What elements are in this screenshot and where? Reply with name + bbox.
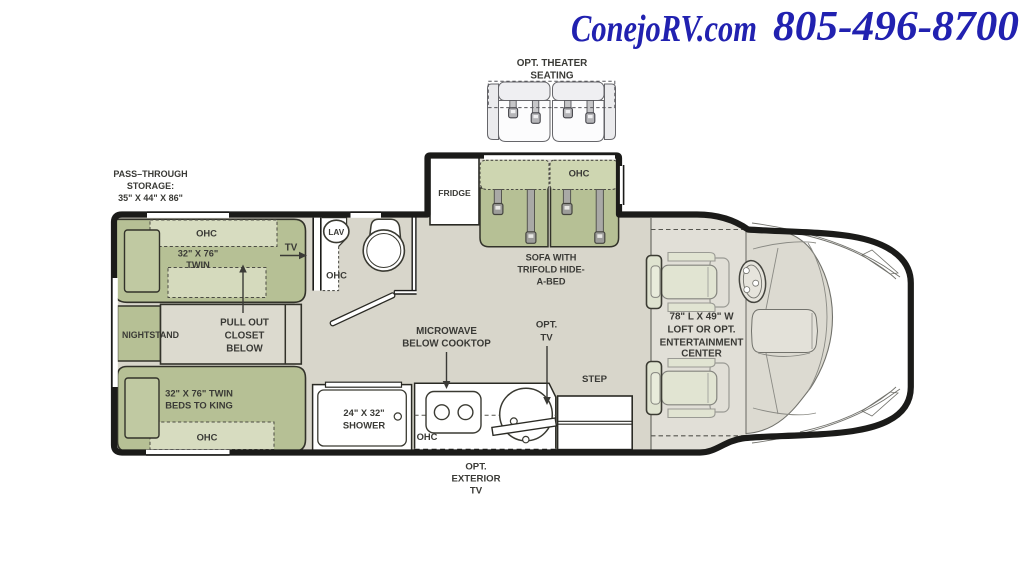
svg-text:TV: TV (540, 333, 553, 344)
svg-text:BELOW COOKTOP: BELOW COOKTOP (402, 339, 491, 350)
svg-text:CENTER: CENTER (681, 349, 722, 360)
svg-text:SOFA WITH: SOFA WITH (526, 253, 577, 263)
svg-text:STEP: STEP (582, 374, 608, 385)
svg-text:SEATING: SEATING (530, 71, 573, 82)
svg-text:35" X 44" X 86": 35" X 44" X 86" (118, 193, 183, 203)
svg-text:805-496-8700: 805-496-8700 (773, 4, 1019, 50)
svg-text:32" X 76": 32" X 76" (178, 249, 218, 259)
svg-text:78" L X 49" W: 78" L X 49" W (669, 312, 734, 323)
svg-text:ConejoRV.com: ConejoRV.com (571, 8, 757, 50)
svg-text:OHC: OHC (569, 168, 590, 179)
svg-text:TRIFOLD HIDE-: TRIFOLD HIDE- (517, 265, 584, 275)
svg-text:LAV: LAV (328, 228, 344, 237)
svg-text:32" X 76" TWIN: 32" X 76" TWIN (165, 388, 233, 399)
svg-text:A-BED: A-BED (536, 277, 565, 287)
svg-text:BELOW: BELOW (226, 344, 263, 355)
svg-text:TWIN: TWIN (186, 260, 210, 270)
svg-text:MICROWAVE: MICROWAVE (416, 326, 477, 337)
svg-text:TV: TV (470, 486, 483, 497)
svg-text:OHC: OHC (326, 270, 347, 281)
svg-text:OPT.: OPT. (465, 462, 486, 473)
svg-text:EXTERIOR: EXTERIOR (451, 474, 500, 485)
svg-text:24" X 32": 24" X 32" (343, 407, 384, 418)
svg-text:OHC: OHC (197, 432, 218, 443)
svg-text:ENTERTAINMENT: ENTERTAINMENT (660, 338, 744, 349)
svg-text:FRIDGE: FRIDGE (438, 188, 471, 198)
svg-text:NIGHTSTAND: NIGHTSTAND (122, 330, 179, 340)
svg-text:OPT. THEATER: OPT. THEATER (517, 58, 588, 69)
svg-text:OPT.: OPT. (536, 320, 557, 331)
svg-text:OHC: OHC (196, 228, 217, 239)
svg-text:PULL OUT: PULL OUT (220, 318, 269, 329)
svg-text:PASS–THROUGH: PASS–THROUGH (113, 169, 187, 179)
svg-text:TV: TV (285, 243, 298, 254)
svg-text:BEDS TO KING: BEDS TO KING (165, 400, 233, 411)
svg-text:STORAGE:: STORAGE: (127, 181, 174, 191)
svg-text:OHC: OHC (417, 431, 438, 442)
svg-text:CLOSET: CLOSET (225, 331, 265, 342)
svg-text:SHOWER: SHOWER (343, 420, 385, 431)
svg-text:LOFT OR OPT.: LOFT OR OPT. (667, 325, 735, 336)
